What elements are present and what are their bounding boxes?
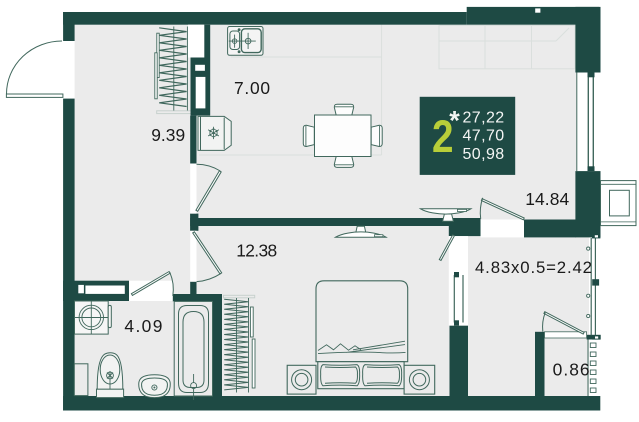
svg-text:4.09: 4.09 xyxy=(124,316,162,336)
svg-text:14.84: 14.84 xyxy=(525,189,569,209)
svg-text:47,70: 47,70 xyxy=(463,128,505,145)
svg-text:9.39: 9.39 xyxy=(151,125,185,145)
svg-text:50,98: 50,98 xyxy=(463,146,505,163)
svg-text:4.83x0.5=2.42: 4.83x0.5=2.42 xyxy=(475,258,592,277)
svg-text:7.00: 7.00 xyxy=(234,78,270,98)
svg-text:0.86: 0.86 xyxy=(553,359,590,379)
svg-text:27,22: 27,22 xyxy=(463,110,505,127)
svg-text:*: * xyxy=(449,105,460,135)
svg-text:12.38: 12.38 xyxy=(236,240,277,260)
